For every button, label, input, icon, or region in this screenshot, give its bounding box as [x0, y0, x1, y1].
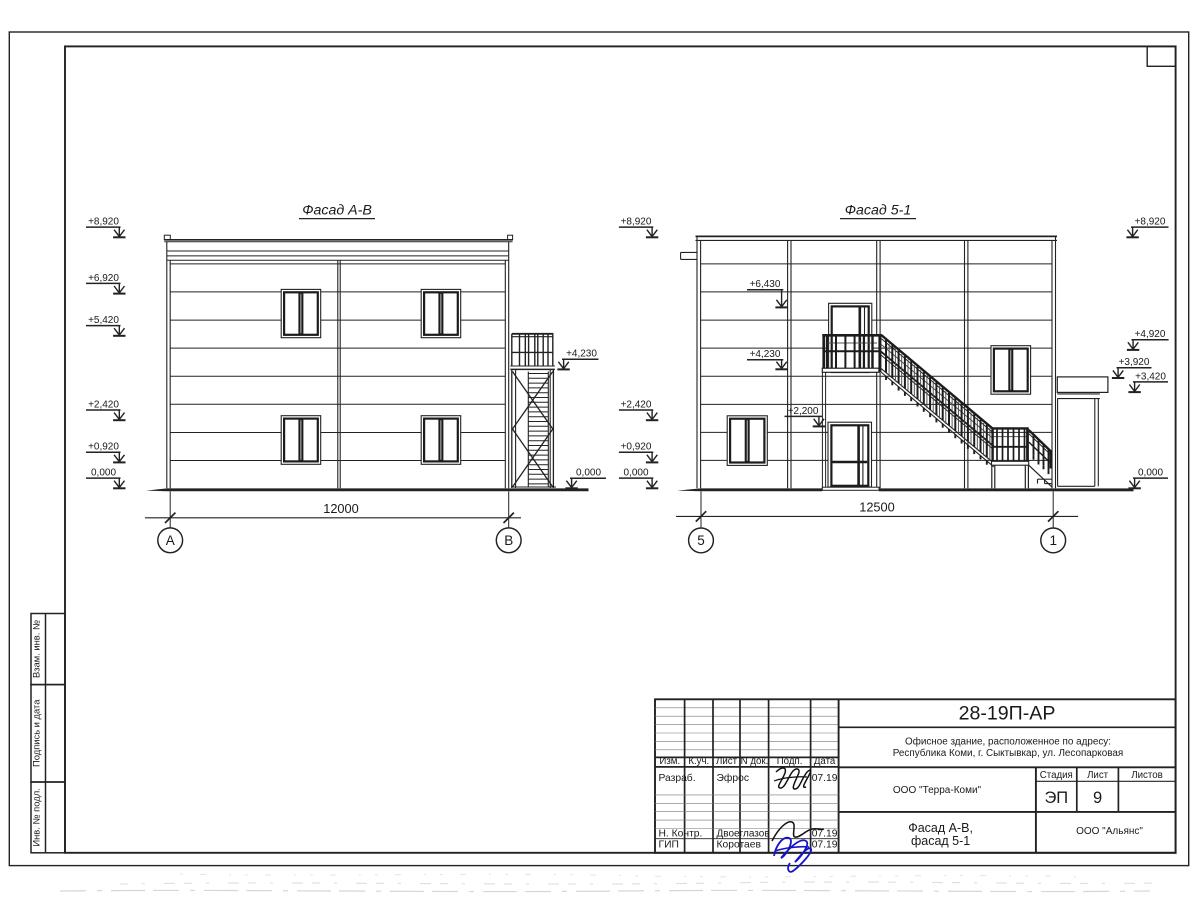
svg-text:+8,920: +8,920 [88, 217, 119, 228]
svg-text:+5,420: +5,420 [88, 315, 119, 326]
svg-text:+3,420: +3,420 [1135, 371, 1166, 382]
svg-text:Фасад А-В,: Фасад А-В, [908, 821, 973, 835]
svg-text:07.19: 07.19 [812, 773, 838, 784]
svg-text:ГИП: ГИП [659, 840, 679, 851]
svg-text:Республика Коми, г. Сыктывкар,: Республика Коми, г. Сыктывкар, ул. Лесоп… [893, 748, 1123, 759]
svg-text:Взам. инв. №: Взам. инв. № [31, 620, 42, 678]
svg-text:+6,920: +6,920 [88, 273, 119, 284]
svg-text:9: 9 [1093, 789, 1102, 807]
svg-text:+3,920: +3,920 [1119, 357, 1150, 368]
svg-text:Изм.: Изм. [659, 756, 680, 767]
svg-text:Листов: Листов [1131, 770, 1162, 781]
svg-text:0,000: 0,000 [623, 468, 648, 479]
svg-text:Эфрос: Эфрос [717, 772, 749, 784]
svg-text:ООО "Терра-Коми": ООО "Терра-Коми" [893, 785, 982, 796]
svg-text:+2,420: +2,420 [88, 399, 119, 410]
svg-text:В: В [504, 533, 513, 548]
svg-text:фасад 5-1: фасад 5-1 [911, 834, 970, 848]
svg-text:+0,920: +0,920 [88, 442, 119, 453]
svg-text:Стадия: Стадия [1040, 770, 1073, 781]
svg-text:28-19П-АР: 28-19П-АР [959, 703, 1056, 725]
svg-text:+2,420: +2,420 [621, 399, 652, 410]
svg-text:1: 1 [1049, 533, 1057, 548]
svg-text:Фасад А-В: Фасад А-В [302, 203, 372, 219]
svg-text:0,000: 0,000 [576, 468, 601, 479]
svg-text:07.19: 07.19 [812, 840, 838, 851]
svg-text:12500: 12500 [859, 500, 895, 515]
svg-text:+8,920: +8,920 [1135, 217, 1166, 228]
svg-text:А: А [166, 533, 175, 548]
svg-text:+4,920: +4,920 [1135, 329, 1166, 340]
svg-text:+2,200: +2,200 [788, 406, 819, 417]
svg-text:Дата: Дата [814, 756, 836, 767]
svg-text:12000: 12000 [323, 501, 359, 516]
svg-text:+0,920: +0,920 [621, 442, 652, 453]
svg-text:Офисное здание, расположенное: Офисное здание, расположенное по адресу: [905, 737, 1111, 748]
svg-text:Инв. № подл.: Инв. № подл. [31, 788, 42, 846]
svg-text:Лист: Лист [716, 756, 738, 767]
svg-text:Двоеглазов: Двоеглазов [717, 829, 770, 840]
svg-text:Лист: Лист [1087, 770, 1109, 781]
svg-text:Н. Контр.: Н. Контр. [659, 829, 703, 840]
svg-text:5: 5 [697, 533, 705, 548]
svg-text:0,000: 0,000 [1138, 468, 1163, 479]
svg-text:ЭП: ЭП [1044, 789, 1068, 807]
svg-text:ООО "Альянс": ООО "Альянс" [1076, 826, 1143, 837]
svg-text:Подпись и дата: Подпись и дата [31, 699, 42, 767]
svg-text:0,000: 0,000 [91, 468, 116, 479]
svg-text:Подп.: Подп. [777, 756, 803, 767]
svg-text:+4,230: +4,230 [750, 349, 781, 360]
svg-text:К.уч.: К.уч. [688, 756, 709, 767]
svg-text:Разраб.: Разраб. [659, 772, 696, 784]
svg-text:+4,230: +4,230 [566, 349, 597, 360]
svg-text:Фасад 5-1: Фасад 5-1 [845, 203, 911, 219]
svg-text:Коротаев: Коротаев [717, 840, 762, 851]
svg-text:N док.: N док. [741, 756, 769, 767]
svg-text:+6,430: +6,430 [750, 279, 781, 290]
svg-text:07.19: 07.19 [812, 829, 838, 840]
svg-text:+8,920: +8,920 [621, 217, 652, 228]
